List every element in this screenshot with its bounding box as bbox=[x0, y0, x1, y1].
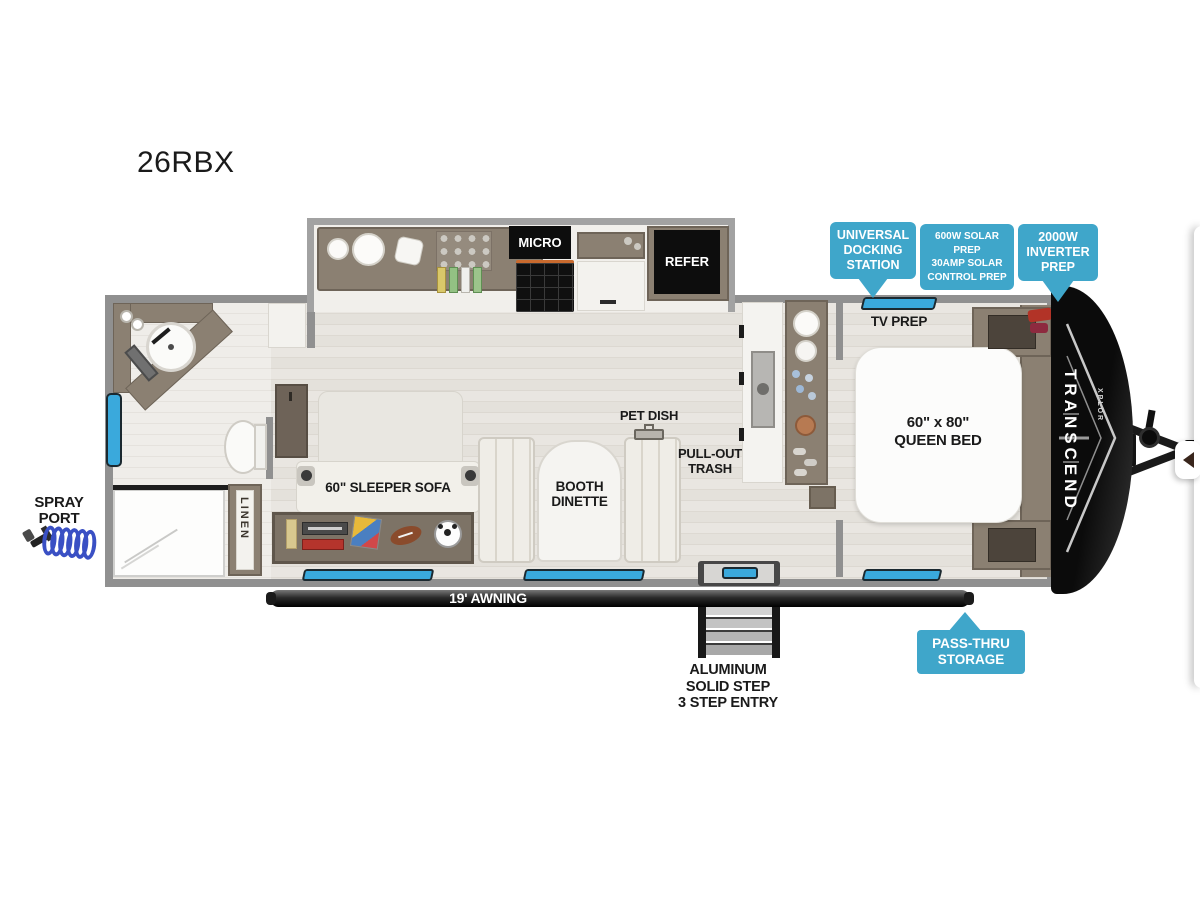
refrigerator-label: REFER bbox=[665, 254, 709, 269]
pantry-item-2 bbox=[804, 459, 817, 466]
brand-name: TRANSCEND bbox=[1060, 296, 1080, 584]
steps-line3: 3 STEP ENTRY bbox=[648, 695, 808, 712]
island-handle-2 bbox=[739, 372, 744, 385]
game-tile bbox=[286, 519, 297, 549]
bath-side-cabinet bbox=[268, 303, 306, 348]
pantry-item-3 bbox=[794, 469, 807, 476]
step-rail-left bbox=[698, 600, 706, 658]
dinette-bench-right bbox=[624, 437, 681, 563]
dinette-window bbox=[523, 569, 646, 581]
dinette-label-line2: DINETTE bbox=[537, 494, 622, 509]
callout-passthru-storage: PASS-THRU STORAGE bbox=[917, 630, 1025, 674]
dinette-bench-left bbox=[478, 437, 535, 563]
spray-line1: SPRAY bbox=[20, 495, 98, 511]
pantry-bowl-copper bbox=[795, 415, 816, 436]
step-rail-right bbox=[772, 600, 780, 658]
tp-roll-2 bbox=[131, 318, 144, 331]
microwave: MICRO bbox=[509, 226, 571, 259]
inverter-line3: PREP bbox=[1020, 260, 1096, 275]
awning-endcap-right bbox=[964, 592, 974, 605]
awning-bar bbox=[270, 590, 970, 607]
bedroom-wall-top bbox=[836, 303, 843, 360]
game-cards bbox=[350, 515, 382, 550]
pantry-cup-3 bbox=[796, 385, 804, 393]
cutting-board-yellow bbox=[437, 267, 446, 293]
docking-line2: DOCKING bbox=[832, 243, 914, 258]
cutting-board-white bbox=[461, 267, 470, 293]
bedroom-window-bottom bbox=[862, 569, 943, 581]
steps-line2: SOLID STEP bbox=[648, 679, 808, 696]
brand-sub: XPLOR bbox=[1096, 388, 1103, 498]
soccer-dot-3 bbox=[452, 524, 457, 529]
passthru-line2: STORAGE bbox=[919, 652, 1023, 668]
step-tread-3 bbox=[706, 630, 772, 641]
sofa-window bbox=[302, 569, 435, 581]
floorplan-page: 26RBX MICRO REFER LINEN bbox=[0, 0, 1200, 900]
tv-prep-window bbox=[860, 297, 937, 310]
pantry-cup-2 bbox=[805, 374, 813, 382]
docking-line3: STATION bbox=[832, 258, 914, 273]
game-box-dark-line bbox=[308, 527, 342, 530]
toilet-tank bbox=[254, 424, 267, 470]
pantry-cup-4 bbox=[808, 392, 816, 400]
queen-bed-line2: QUEEN BED bbox=[865, 432, 1011, 450]
pantry-plate-1 bbox=[793, 310, 820, 337]
hitch-jack-wheel bbox=[1139, 427, 1160, 448]
pet-dish-handle bbox=[644, 424, 654, 429]
sofa-backrest bbox=[318, 391, 463, 463]
soccer-dot-1 bbox=[444, 529, 451, 536]
pullout-trash-label: PULL-OUT TRASH bbox=[677, 447, 743, 476]
passthru-line1: PASS-THRU bbox=[919, 636, 1023, 652]
trash-label-line2: TRASH bbox=[677, 462, 743, 477]
steps-line1: ALUMINUM bbox=[648, 662, 808, 679]
queen-bed-label: 60" x 80" QUEEN BED bbox=[865, 414, 1011, 450]
solar-line2: 30AMP SOLAR bbox=[922, 257, 1012, 271]
docking-line1: UNIVERSAL bbox=[832, 228, 914, 243]
step-tread-4 bbox=[706, 643, 772, 655]
dinette-label: BOOTH DINETTE bbox=[537, 479, 622, 509]
pantry-cup-1 bbox=[792, 370, 800, 378]
linen-label: LINEN bbox=[238, 497, 250, 565]
step-tread-2 bbox=[706, 617, 772, 628]
soccer-dot-2 bbox=[438, 524, 443, 529]
inverter-line1: 2000W bbox=[1020, 230, 1096, 245]
sink-drain bbox=[168, 344, 174, 350]
stove-icon bbox=[516, 260, 574, 312]
pantry-plate-2 bbox=[795, 340, 817, 362]
trash-label-line1: PULL-OUT bbox=[677, 447, 743, 462]
callout-docking-arrow bbox=[858, 278, 888, 298]
plate-large bbox=[352, 233, 385, 266]
inverter-line2: INVERTER bbox=[1020, 245, 1096, 260]
pillow-maroon bbox=[1030, 323, 1048, 333]
awning-endcap-left bbox=[266, 592, 276, 605]
wardrobe-handle bbox=[289, 392, 292, 401]
bathroom-window bbox=[106, 393, 122, 467]
island-end-step bbox=[809, 486, 836, 509]
spray-port-label: SPRAY PORT bbox=[20, 495, 98, 527]
callout-inverter-arrow bbox=[1042, 280, 1074, 302]
solar-line1: 600W SOLAR PREP bbox=[922, 230, 1012, 257]
spray-line2: PORT bbox=[20, 511, 98, 527]
island-faucet bbox=[757, 383, 769, 395]
gallery-prev-button[interactable] bbox=[1175, 441, 1200, 479]
arrow-left-icon bbox=[1183, 452, 1194, 468]
shower-door-track bbox=[113, 485, 231, 490]
steps-label: ALUMINUM SOLID STEP 3 STEP ENTRY bbox=[648, 662, 808, 712]
queen-bed-line1: 60" x 80" bbox=[865, 414, 1011, 432]
toilet-wall-stub bbox=[266, 417, 273, 479]
plate-small bbox=[327, 238, 349, 260]
microwave-label: MICRO bbox=[518, 235, 561, 250]
entry-door-window bbox=[722, 567, 758, 579]
bedroom-wall-bottom bbox=[836, 520, 843, 577]
tv-prep-label: TV PREP bbox=[856, 314, 942, 329]
callout-solar-prep: 600W SOLAR PREP 30AMP SOLAR CONTROL PREP bbox=[920, 224, 1014, 290]
awning-label: 19' AWNING bbox=[398, 591, 578, 607]
cutting-board-green2 bbox=[473, 267, 482, 293]
pet-dish-label: PET DISH bbox=[613, 409, 685, 424]
dinette-label-line1: BOOTH bbox=[537, 479, 622, 494]
sink-knob-a bbox=[624, 237, 632, 245]
sink-knob-b bbox=[634, 243, 641, 250]
counter-handle bbox=[600, 300, 616, 304]
game-box-red bbox=[302, 539, 344, 550]
callout-inverter-prep: 2000W INVERTER PREP bbox=[1018, 224, 1098, 281]
pantry-item-1 bbox=[793, 448, 806, 455]
cutting-board-green bbox=[449, 267, 458, 293]
island-handle-3 bbox=[739, 428, 744, 441]
pet-dish-icon bbox=[634, 429, 664, 440]
egg-tray bbox=[436, 231, 492, 271]
sofa-label: 60" SLEEPER SOFA bbox=[306, 480, 470, 495]
solar-line3: CONTROL PREP bbox=[922, 271, 1012, 285]
refrigerator: REFER bbox=[654, 230, 720, 294]
callout-docking-station: UNIVERSAL DOCKING STATION bbox=[830, 222, 916, 279]
island-handle-1 bbox=[739, 325, 744, 338]
page-title: 26RBX bbox=[137, 146, 235, 180]
callout-passthru-arrow bbox=[948, 612, 982, 632]
spray-hose-coil bbox=[46, 526, 97, 566]
nightstand-bottom-inset bbox=[988, 528, 1036, 562]
plate-square bbox=[394, 236, 425, 267]
